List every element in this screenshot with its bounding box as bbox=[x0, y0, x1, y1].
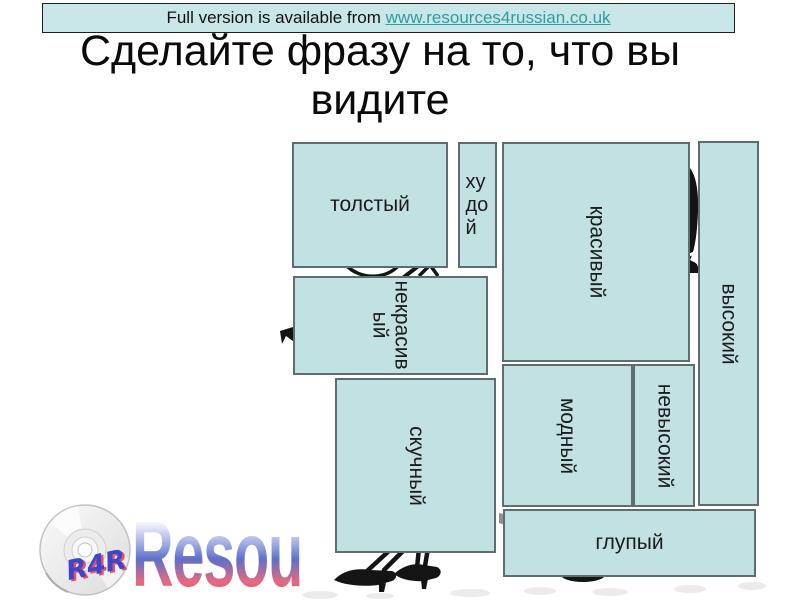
word-box-krasivyy[interactable]: красивый bbox=[502, 142, 690, 362]
word-box-tolstyy[interactable]: толстый bbox=[292, 142, 448, 268]
word-box-nekrasivyy[interactable]: некрасивый bbox=[293, 276, 488, 375]
word-box-glupyy[interactable]: глупый bbox=[503, 509, 756, 577]
word-label: невысокий bbox=[652, 383, 676, 488]
woman-legs-fragment bbox=[334, 548, 441, 592]
word-label: высокий bbox=[717, 283, 741, 364]
word-box-nevysokiy[interactable]: невысокий bbox=[633, 364, 695, 507]
title-line-2: видите bbox=[0, 76, 760, 125]
page-title: Сделайте фразу на то, что вы видите bbox=[0, 27, 760, 125]
banner-link[interactable]: www.resources4russian.co.uk bbox=[386, 8, 611, 28]
slide: Full version is available from www.resou… bbox=[0, 0, 800, 600]
word-box-skuchnyy[interactable]: скучный bbox=[335, 378, 496, 553]
banner: Full version is available from www.resou… bbox=[42, 3, 735, 33]
word-box-khudoy[interactable]: худой bbox=[458, 142, 497, 268]
word-label: красивый bbox=[584, 206, 608, 299]
banner-text: Full version is available from bbox=[166, 8, 385, 28]
word-label: скучный bbox=[403, 426, 427, 506]
word-box-vysokiy[interactable]: высокий bbox=[698, 141, 759, 506]
word-box-modnyy[interactable]: модный bbox=[502, 364, 633, 507]
word-label: глупый bbox=[595, 531, 663, 555]
word-label: модный bbox=[556, 397, 580, 473]
figure-hand-fragment bbox=[280, 327, 293, 344]
title-line-1: Сделайте фразу на то, что вы bbox=[0, 27, 760, 76]
word-label: толстый bbox=[330, 193, 410, 217]
word-label: некрасивый bbox=[368, 277, 412, 374]
word-label: худой bbox=[466, 171, 490, 240]
